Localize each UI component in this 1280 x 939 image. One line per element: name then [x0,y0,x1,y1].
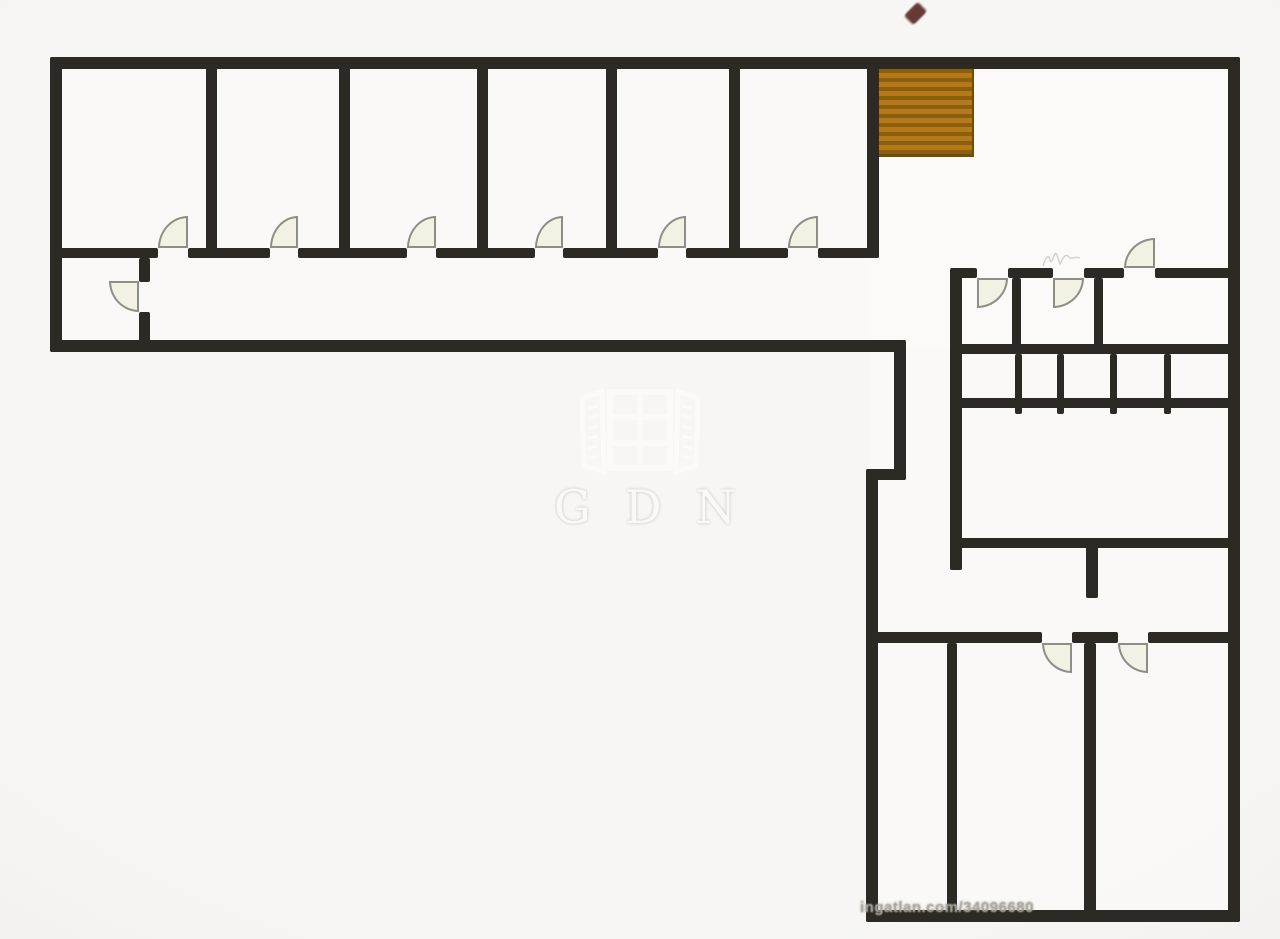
gdn-watermark: GDN [520,384,760,534]
wall-subroom-divider [1094,278,1103,354]
wall-right-vertical [950,268,962,570]
wall-rooms-bottom [818,248,879,258]
entrance-marker-icon [904,2,927,25]
wall-hall-bottom [866,632,1042,643]
wall-room6-right [867,57,879,258]
wall-rooms-bottom [50,248,158,258]
building-interior-right-wing [870,62,1234,916]
wall-rooms-bottom [188,248,270,258]
wall-room-divider [206,57,217,258]
wall-small-room-divider [139,312,150,346]
wall-right-upper [1155,268,1240,278]
wall-right-upper [1084,268,1124,278]
gdn-watermark-text: GDN [520,480,760,534]
wall-room-divider [606,57,617,258]
wall-outer-top [50,57,1240,69]
wall-small-room-divider [139,258,150,282]
wall-right-mid-2 [953,398,1240,408]
wall-corridor-bottom [50,340,906,352]
wall-step-vertical [894,340,906,480]
wall-subroom-divider [1012,278,1021,352]
wall-rooms-bottom [298,248,407,258]
wall-right-mid-1 [953,344,1240,354]
wall-bottom-room-divider [947,643,957,916]
wall-rooms-bottom [436,248,535,258]
staircase-icon [872,64,974,157]
wall-room-divider [477,57,488,258]
wall-hall-bottom [1148,632,1240,643]
open-window-icon [574,384,706,476]
wall-room-divider [339,57,350,258]
wall-outer-right [1228,57,1240,922]
wall-room-divider [729,57,740,258]
floor-plan: GDN ingatlan.com/34096680 [0,0,1280,939]
wall-outer-left-lower [866,469,878,922]
wall-bottom-room-divider [1084,643,1096,916]
wall-hall-bottom [1072,632,1118,643]
listing-watermark-text: ingatlan.com/34096680 [860,899,1034,916]
wall-stub [1086,538,1098,598]
wall-outer-left [50,57,62,352]
wall-rooms-bottom [686,248,788,258]
handwritten-scribble [1040,248,1084,270]
wall-rooms-bottom [563,248,658,258]
